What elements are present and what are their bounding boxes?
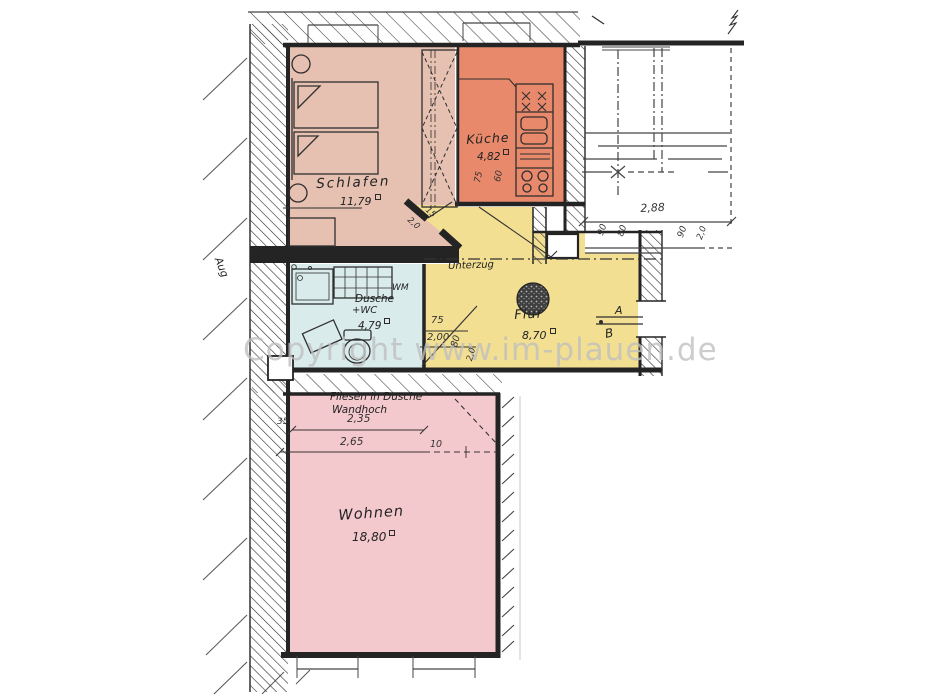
- room-area-dusche: 4,79: [358, 318, 390, 332]
- living-right-ticks: [502, 396, 520, 660]
- m2-symbol: [503, 149, 509, 155]
- m2-symbol: [550, 328, 556, 334]
- room-label-kueche: Küche: [466, 132, 510, 147]
- dim-75: 75: [431, 316, 444, 326]
- dim-35: 35: [277, 418, 288, 427]
- stairwell-lines: [579, 10, 738, 253]
- room-area-schlafen: 11,79: [340, 194, 381, 207]
- watermark: Copyright www.im-plauen.de: [243, 332, 718, 368]
- dim-265: 2,65: [340, 437, 363, 448]
- m2-symbol: [375, 194, 381, 200]
- room-label-dusche-wc: +WC: [352, 306, 377, 316]
- room-area-wohnen: 18,80: [352, 530, 395, 543]
- room-area-flur: 8,70: [522, 328, 556, 341]
- annotation-unterzug: Unterzug: [448, 260, 494, 272]
- annotation-fliesen-1: Fliesen in Dusche: [330, 392, 422, 403]
- m2-symbol: [384, 318, 390, 324]
- dim-235: 2,35: [347, 414, 370, 425]
- room-label-dusche: Dusche: [355, 294, 394, 305]
- room-area-kueche: 4,82: [477, 149, 509, 163]
- dim-200: 2,00: [427, 333, 449, 343]
- dim-10: 10: [430, 440, 442, 450]
- floorplan-page: Copyright www.im-plauen.de Schlafen 11,7…: [0, 0, 934, 700]
- dim-stair-width: 2,88: [640, 202, 665, 214]
- m2-symbol: [389, 530, 395, 536]
- section-label-a: A: [615, 305, 623, 316]
- annotation-wm: WM: [392, 284, 409, 293]
- room-label-flur: Flur: [514, 307, 543, 321]
- room-label-schlafen: Schlafen: [316, 175, 391, 191]
